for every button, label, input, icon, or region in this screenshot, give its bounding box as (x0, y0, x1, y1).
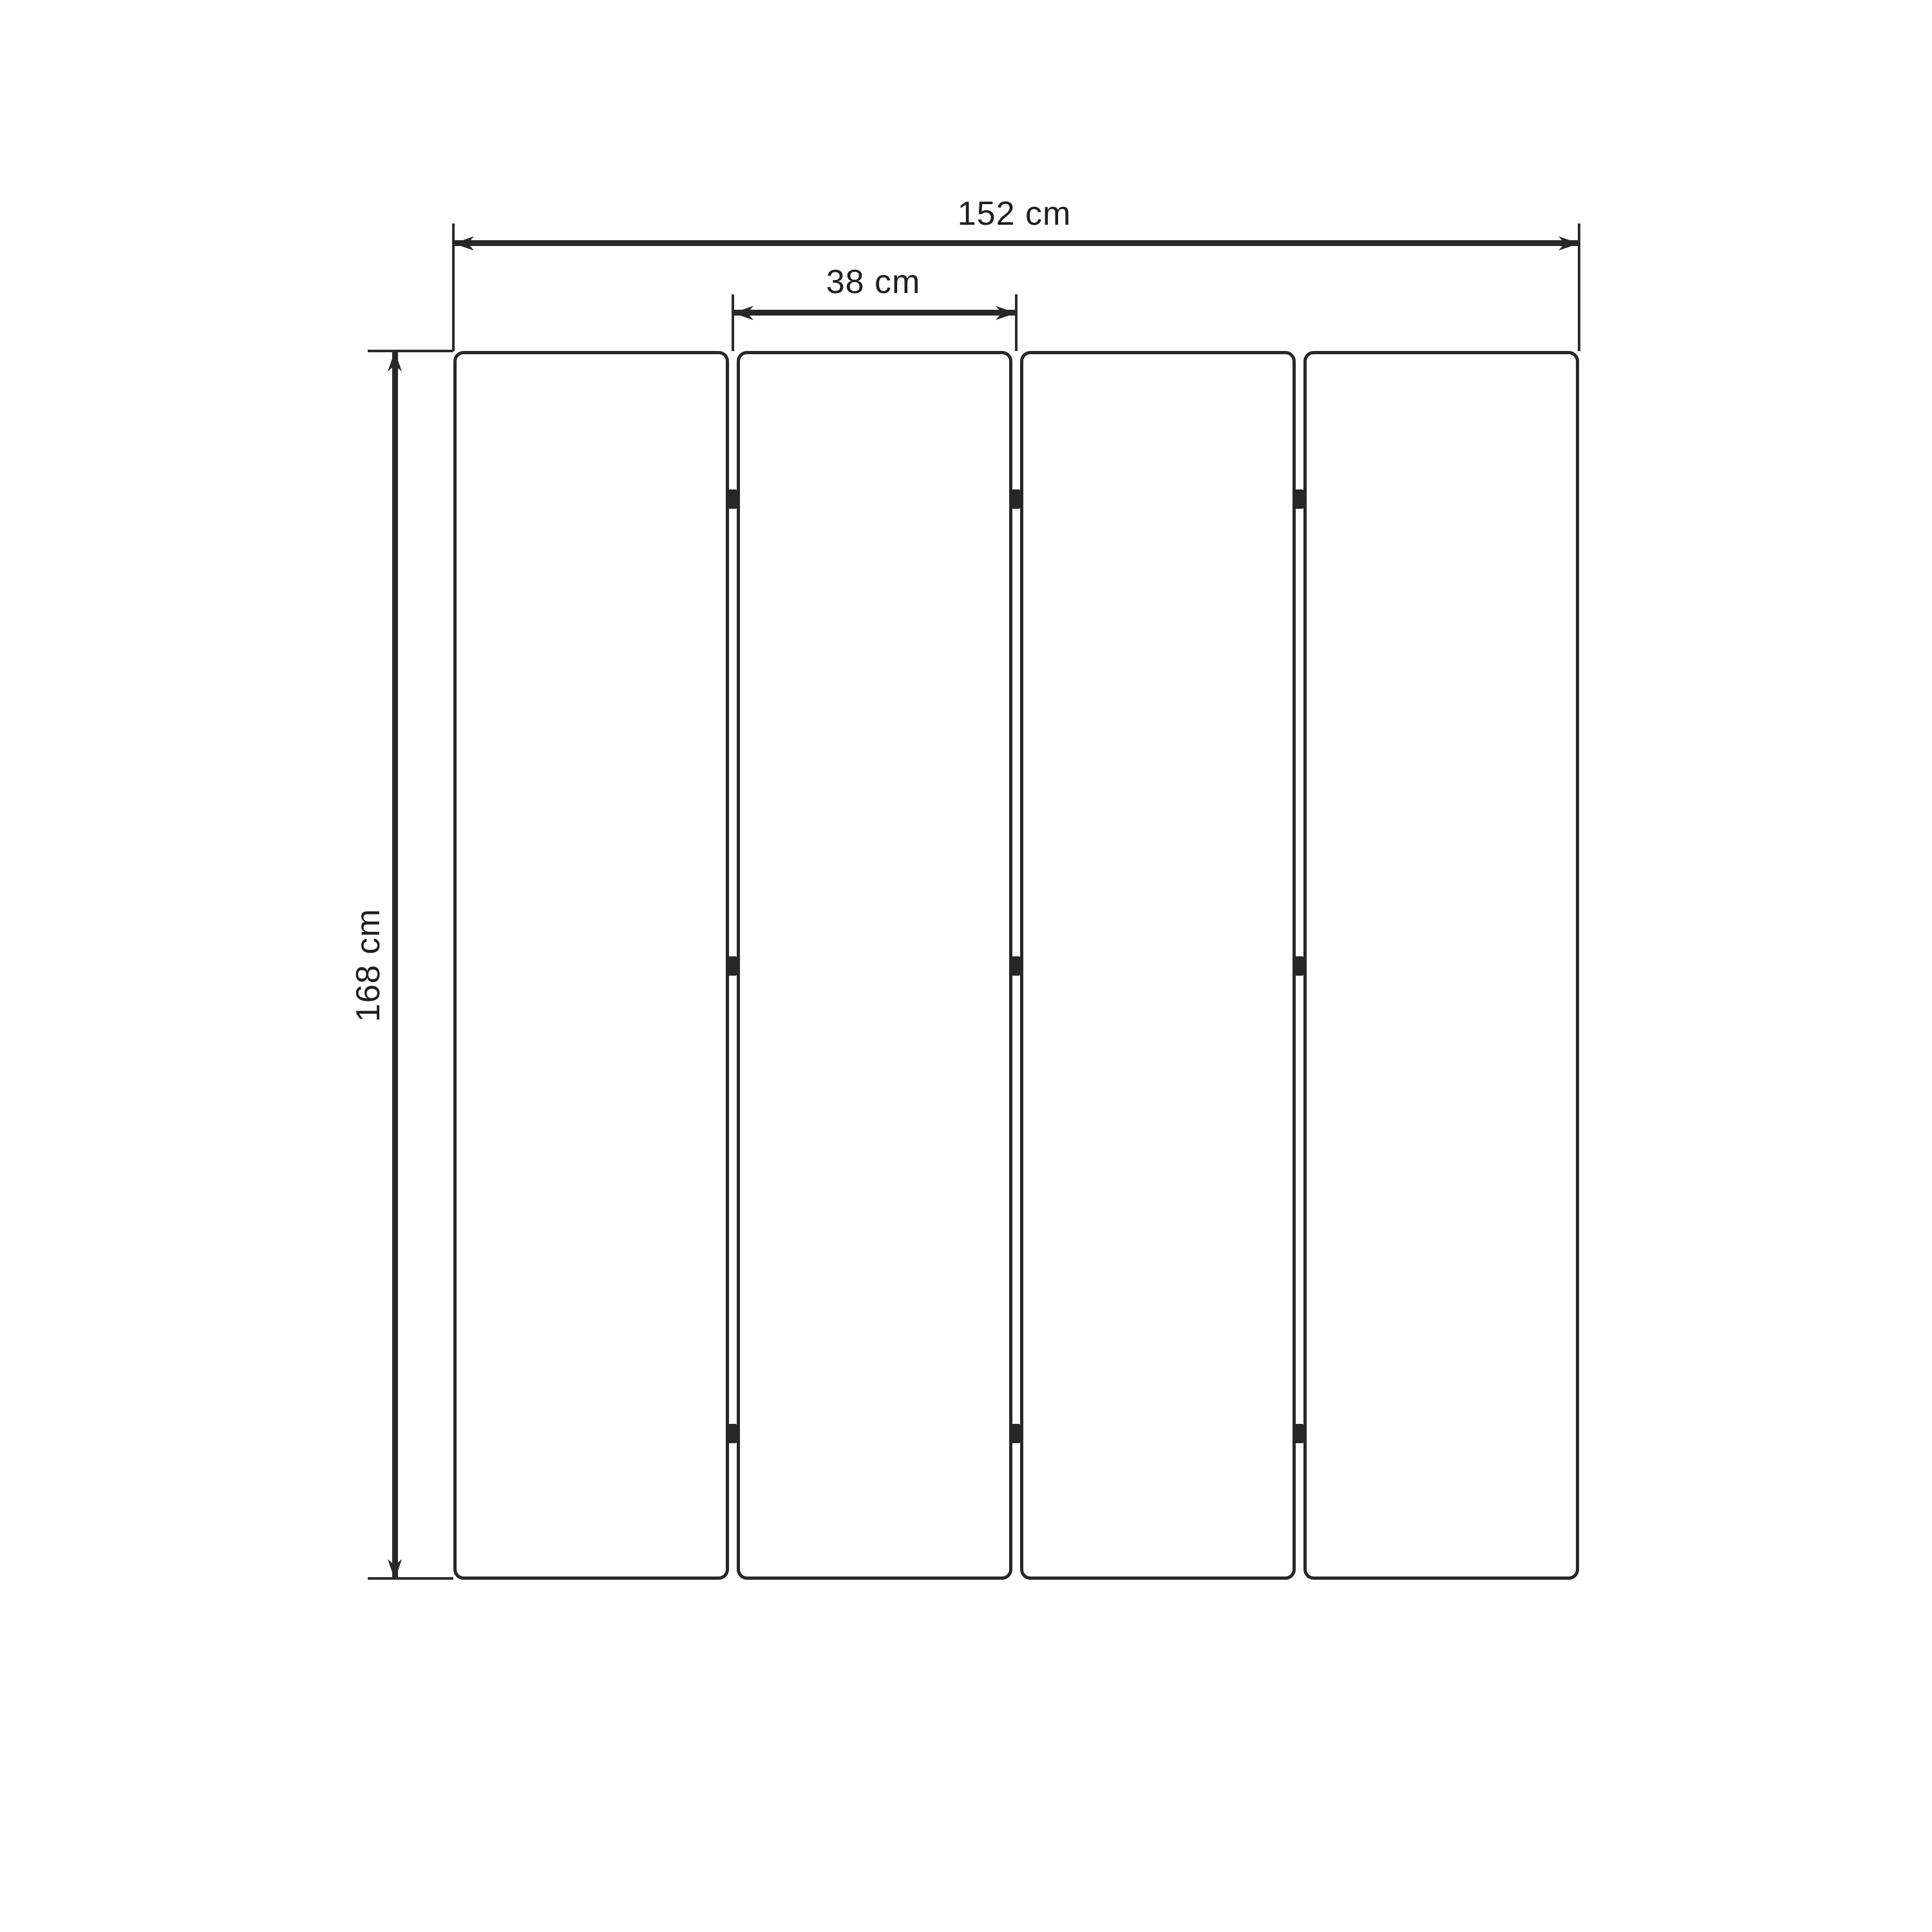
hinge-mark (1295, 1424, 1303, 1443)
panel-width-label: 38 cm (826, 263, 921, 301)
screen-panel-1 (453, 351, 729, 1580)
screen-panel-3 (1020, 351, 1296, 1580)
screen-panel-2 (737, 351, 1012, 1580)
hinge-mark (728, 1424, 737, 1443)
extension-line-bottom (368, 1577, 453, 1580)
total-width-label: 152 cm (958, 194, 1072, 233)
hinge-mark (1012, 956, 1020, 976)
hinge-mark (1295, 956, 1303, 976)
dimension-line-panel-width (734, 310, 1015, 316)
screen-panel-4 (1303, 351, 1579, 1580)
dimension-line-total-width (455, 240, 1578, 246)
hinge-mark (1012, 489, 1020, 509)
extension-line-top (368, 350, 453, 352)
hinge-mark (728, 489, 737, 509)
height-label: 168 cm (349, 909, 388, 1023)
hinge-mark (1295, 489, 1303, 509)
extension-line-left (732, 294, 734, 351)
extension-line-right (1578, 223, 1580, 351)
hinge-mark (728, 956, 737, 976)
extension-line-right (1015, 294, 1018, 351)
dimension-line-height (392, 352, 398, 1578)
hinge-mark (1012, 1424, 1020, 1443)
dimension-diagram: 152 cm 38 cm 168 cm (0, 0, 1932, 1932)
